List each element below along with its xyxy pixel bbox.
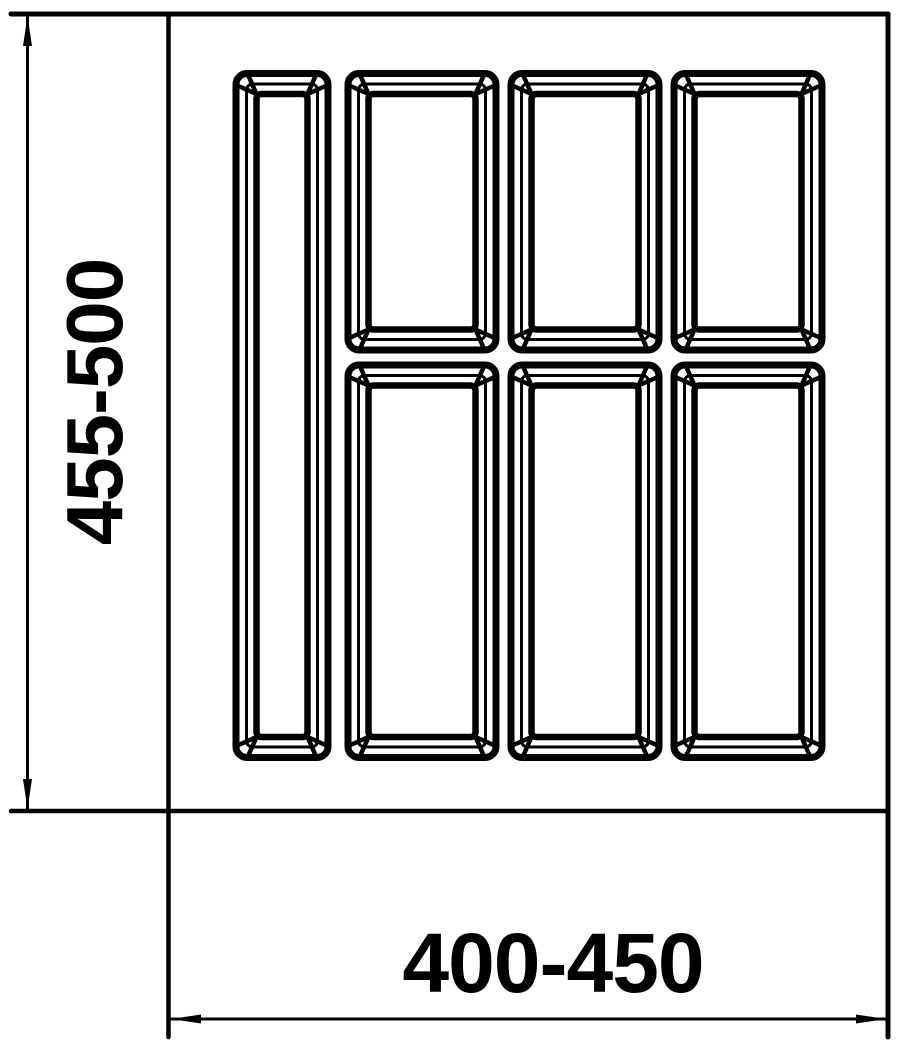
compartment-outer-rim <box>236 74 328 758</box>
horizontal-dimension-arrow-left <box>171 1015 201 1024</box>
compartment-slope-contour <box>522 376 649 748</box>
compartment-slope-contour <box>359 84 486 340</box>
cutlery-tray-technical-drawing: 455-500 400-450 <box>0 0 904 1048</box>
vertical-dimension-arrow-down <box>23 779 32 809</box>
vertical-dimension-arrow-up <box>23 16 32 46</box>
compartment-floor-edge <box>532 94 639 330</box>
compartment-floor-edge <box>369 94 476 330</box>
compartment-floor-edge <box>532 386 639 738</box>
compartment-slope-contour <box>685 376 812 748</box>
compartment <box>673 73 823 352</box>
horizontal-dimension-label: 400-450 <box>402 921 703 1005</box>
compartment-slope-contour <box>522 84 649 340</box>
compartment-slope-contour <box>359 376 486 748</box>
horizontal-dimension-arrow-right <box>856 1015 886 1024</box>
compartment-floor-edge <box>695 386 802 738</box>
compartment-floor-edge <box>695 94 802 330</box>
compartment <box>673 364 823 759</box>
vertical-dimension-label: 455-500 <box>55 259 135 546</box>
compartment-floor-edge <box>369 386 476 738</box>
compartment-floor-edge <box>257 94 308 737</box>
compartment <box>347 73 497 352</box>
compartment <box>510 364 660 759</box>
compartment <box>347 364 497 759</box>
compartment <box>235 73 329 759</box>
compartment <box>510 73 660 352</box>
compartment-slope-contour <box>685 84 812 340</box>
